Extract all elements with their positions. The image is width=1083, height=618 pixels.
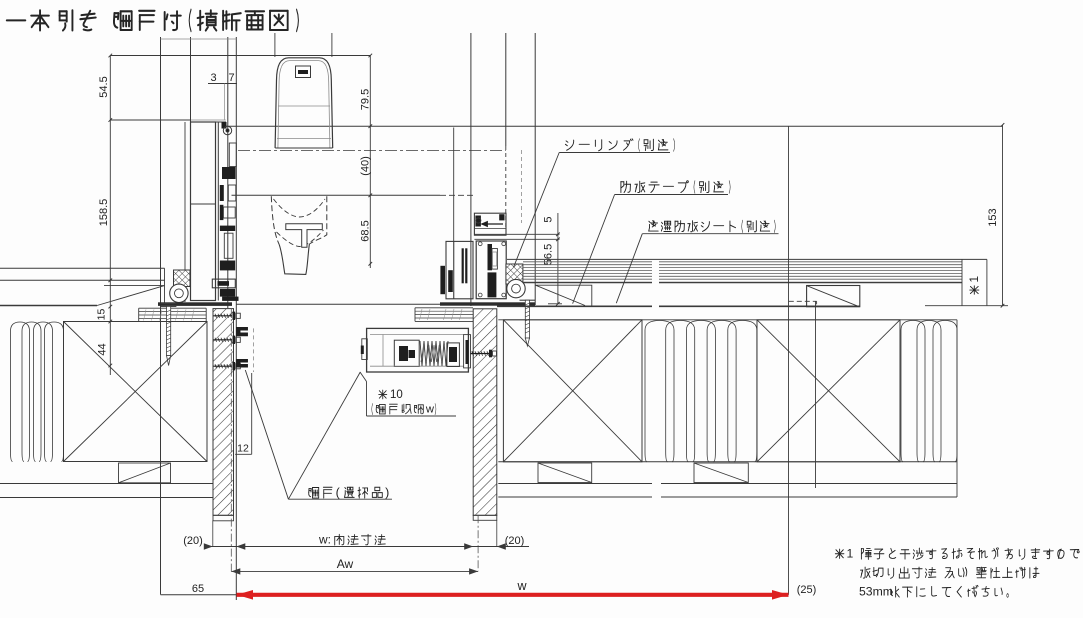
svg-text:1: 1 [967,275,981,282]
svg-text:(20): (20) [505,535,525,547]
svg-text:(40): (40) [360,156,372,176]
svg-text:79.5: 79.5 [360,89,372,110]
svg-text:w: w [516,579,527,593]
svg-text:54.5: 54.5 [98,76,110,97]
svg-text:w: w [425,404,435,416]
svg-text:(25): (25) [797,584,817,596]
svg-text:12: 12 [237,443,249,455]
svg-text:44: 44 [97,343,109,355]
svg-text:153: 153 [987,208,999,226]
svg-text:3: 3 [210,72,216,84]
svg-text:10: 10 [390,389,403,401]
svg-text:(20): (20) [183,535,203,547]
svg-text:158.5: 158.5 [98,199,110,227]
svg-text:1: 1 [847,547,854,561]
svg-text:w:: w: [318,533,331,547]
svg-text:): ) [385,486,389,500]
svg-text:15: 15 [96,309,108,321]
svg-text:5: 5 [543,216,555,222]
svg-text:Aw: Aw [337,557,354,571]
svg-text:7: 7 [228,72,234,84]
svg-text:53mm: 53mm [859,585,893,599]
svg-text:65: 65 [192,583,204,595]
svg-text:68.5: 68.5 [360,220,372,241]
